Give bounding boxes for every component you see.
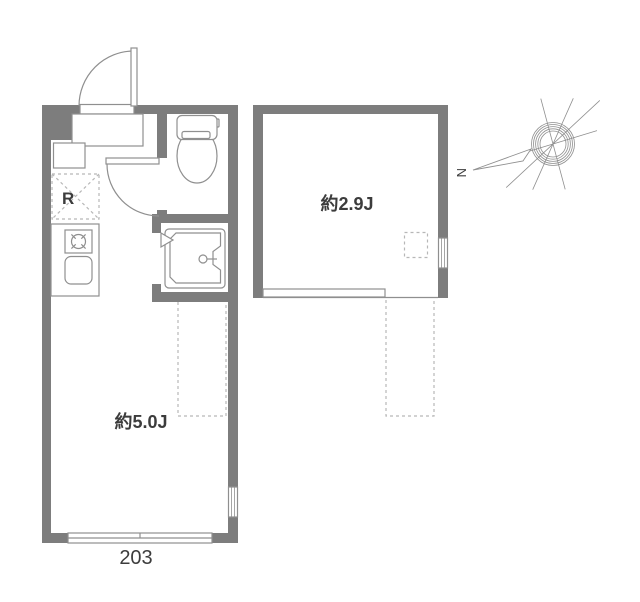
entrance-sill <box>80 105 134 115</box>
fridge-space: R <box>52 174 99 219</box>
main-room-east-window <box>229 487 238 517</box>
loft-east-window <box>439 238 448 268</box>
main-room-label: 約5.0J <box>114 411 167 432</box>
left-unit-windows <box>68 487 238 543</box>
wall-right <box>228 105 238 543</box>
toilet-tank <box>177 116 217 140</box>
toilet-door-leaf <box>106 158 159 164</box>
entry-wall-block <box>51 105 72 140</box>
toilet-bath-divider-wall <box>152 214 238 223</box>
bathroom <box>161 229 225 288</box>
bath-bottom-wall <box>152 292 238 302</box>
floorplan-drawing: R <box>0 0 640 602</box>
loft-wall-top <box>253 105 448 114</box>
loft-wall-left <box>253 105 263 298</box>
room-labels: 約5.0J 約2.9J 203 <box>114 193 373 569</box>
bath-faucet <box>199 255 207 263</box>
ac-unit-outline <box>405 233 428 258</box>
entrance-door-leaf <box>131 48 137 106</box>
toilet-door-swing-arc <box>107 164 159 216</box>
loft-ledge <box>263 289 385 297</box>
entrance-door-swing-arc <box>79 51 134 106</box>
floorplan-canvas: R <box>0 0 640 602</box>
loft-outline-left-unit <box>178 302 226 416</box>
unit-number-label: 203 <box>119 547 152 569</box>
loft-wall-right <box>438 105 448 298</box>
wall-left <box>42 105 51 543</box>
compass-rays <box>506 98 600 189</box>
toilet-wall-upper <box>157 114 167 158</box>
loft-room-label: 約2.9J <box>320 193 373 214</box>
entrance-door <box>79 48 137 114</box>
wall-top-right-segment <box>134 105 238 114</box>
shoe-cabinet <box>54 143 86 168</box>
north-label: N <box>454 168 469 177</box>
fridge-label: R <box>62 189 74 208</box>
entry-step <box>72 114 143 146</box>
compass: N <box>454 98 600 189</box>
north-arrow <box>473 149 531 170</box>
loft-outline-right-room <box>386 300 434 416</box>
kitchen <box>51 224 99 296</box>
bath-wall-upper <box>152 223 161 233</box>
fridge-space-cross <box>52 174 99 219</box>
